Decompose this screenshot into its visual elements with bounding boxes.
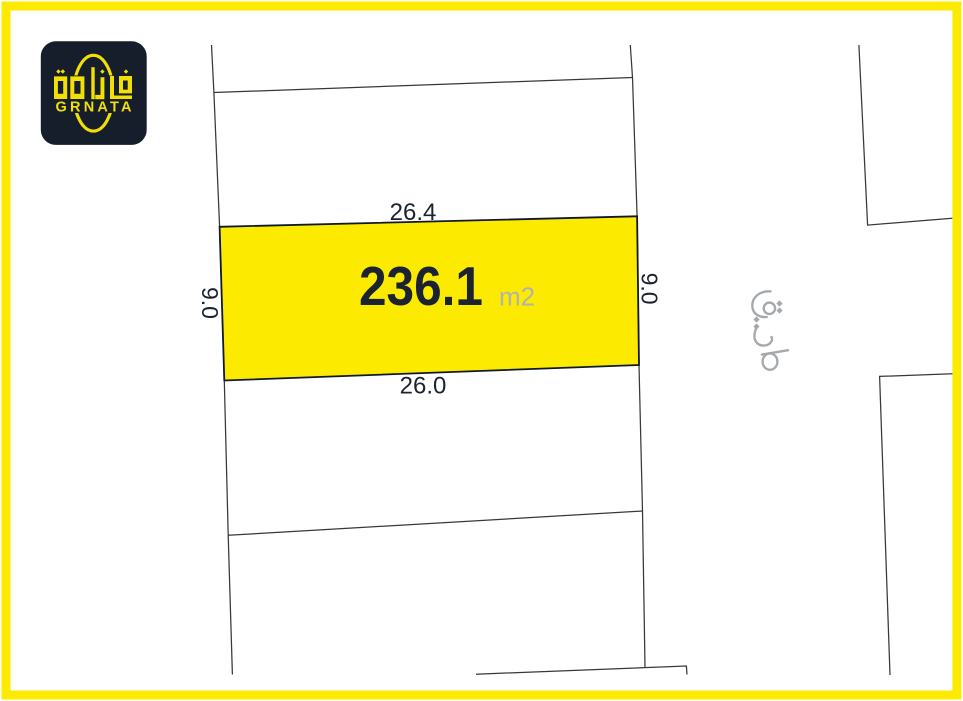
svg-text:26.0: 26.0 xyxy=(400,373,447,400)
svg-text:26.4: 26.4 xyxy=(390,199,437,226)
svg-text:m2: m2 xyxy=(499,282,535,312)
svg-text:9.0: 9.0 xyxy=(637,273,663,305)
svg-text:236.1: 236.1 xyxy=(359,255,483,317)
svg-text:9.0: 9.0 xyxy=(197,287,223,319)
